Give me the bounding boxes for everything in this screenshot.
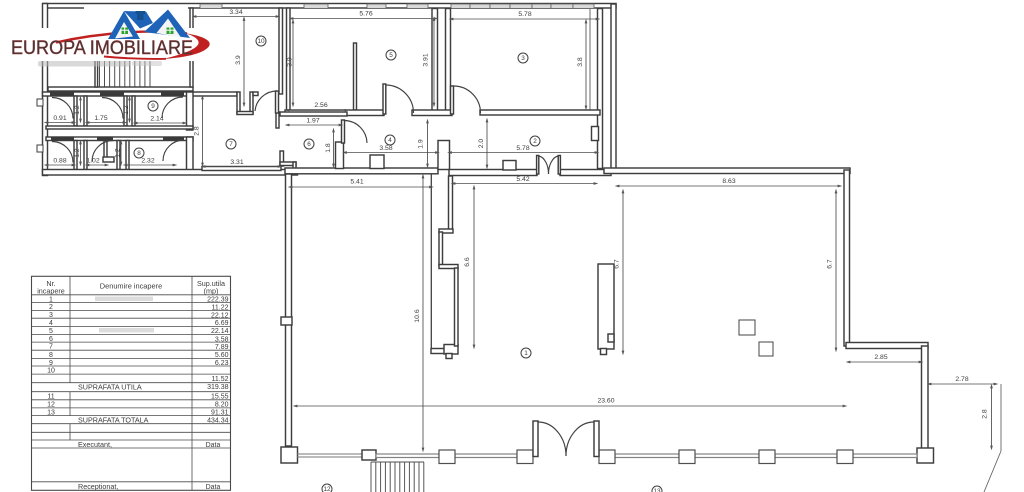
svg-text:13: 13 <box>653 488 661 492</box>
svg-text:3.9: 3.9 <box>287 57 294 67</box>
svg-text:22.12: 22.12 <box>211 312 229 319</box>
svg-text:8.63: 8.63 <box>722 178 735 185</box>
svg-text:11.52: 11.52 <box>212 376 229 383</box>
svg-text:5.60: 5.60 <box>215 352 229 359</box>
svg-text:1.2: 1.2 <box>123 105 130 115</box>
svg-text:1.2: 1.2 <box>74 105 81 115</box>
svg-text:2: 2 <box>49 304 53 311</box>
svg-text:5.42: 5.42 <box>516 176 529 183</box>
svg-text:10: 10 <box>257 38 265 45</box>
svg-text:6: 6 <box>49 336 53 343</box>
svg-text:SUPRAFATA UTILA: SUPRAFATA UTILA <box>78 383 142 392</box>
svg-text:1.2: 1.2 <box>115 148 122 158</box>
svg-text:13: 13 <box>47 410 55 417</box>
svg-text:incapere: incapere <box>37 287 65 296</box>
svg-text:9: 9 <box>151 103 155 110</box>
svg-text:5: 5 <box>389 52 393 59</box>
svg-text:434.34: 434.34 <box>207 417 229 424</box>
svg-text:11: 11 <box>47 393 54 400</box>
svg-text:0.88: 0.88 <box>53 158 66 165</box>
svg-text:8.20: 8.20 <box>215 402 229 409</box>
svg-text:6.69: 6.69 <box>215 320 229 327</box>
svg-text:0.91: 0.91 <box>53 115 66 122</box>
svg-text:5.41: 5.41 <box>350 179 363 186</box>
svg-text:23.60: 23.60 <box>597 398 614 405</box>
svg-text:Executant,: Executant, <box>78 440 112 449</box>
svg-text:2.8: 2.8 <box>194 126 201 136</box>
svg-text:3: 3 <box>49 312 53 319</box>
svg-text:7.89: 7.89 <box>215 344 229 351</box>
svg-text:2.14: 2.14 <box>150 116 163 123</box>
svg-text:Data: Data <box>206 484 221 491</box>
svg-text:222.39: 222.39 <box>207 297 229 304</box>
svg-text:1.75: 1.75 <box>94 115 107 122</box>
svg-text:8: 8 <box>137 150 141 157</box>
svg-text:319.38: 319.38 <box>207 384 229 391</box>
svg-text:1: 1 <box>49 296 53 303</box>
svg-text:5: 5 <box>49 328 53 335</box>
svg-text:2.56: 2.56 <box>314 102 327 109</box>
svg-text:11.22: 11.22 <box>212 304 229 311</box>
svg-text:3.31: 3.31 <box>230 159 243 166</box>
svg-text:2.32: 2.32 <box>141 158 154 165</box>
svg-text:EUROPA IMOBILIARE: EUROPA IMOBILIARE <box>11 38 193 59</box>
svg-text:10.6: 10.6 <box>414 309 421 322</box>
svg-text:6.7: 6.7 <box>827 259 834 269</box>
svg-text:3: 3 <box>521 55 525 62</box>
svg-text:2: 2 <box>533 138 537 145</box>
svg-text:6: 6 <box>307 141 311 148</box>
svg-text:1.8: 1.8 <box>325 143 332 153</box>
svg-text:3.34: 3.34 <box>229 9 242 16</box>
svg-text:8: 8 <box>49 352 53 359</box>
svg-text:Data: Data <box>206 442 221 449</box>
svg-text:6.23: 6.23 <box>215 360 229 367</box>
svg-text:10: 10 <box>47 368 55 375</box>
svg-text:SUPRAFATA TOTALA: SUPRAFATA TOTALA <box>78 416 149 425</box>
svg-text:91.31: 91.31 <box>211 410 229 417</box>
svg-text:1: 1 <box>524 350 528 357</box>
svg-text:2.8: 2.8 <box>982 409 989 419</box>
svg-text:5.78: 5.78 <box>516 145 529 152</box>
svg-text:5.78: 5.78 <box>518 11 531 18</box>
svg-text:4: 4 <box>388 137 392 144</box>
svg-text:1.9: 1.9 <box>418 139 425 149</box>
svg-text:Receptionat,: Receptionat, <box>78 482 118 491</box>
svg-text:(mp): (mp) <box>204 287 219 296</box>
svg-text:Denumire incapere: Denumire incapere <box>100 282 162 291</box>
svg-text:7: 7 <box>49 344 53 351</box>
svg-text:15.55: 15.55 <box>211 394 229 401</box>
svg-text:4: 4 <box>49 320 53 327</box>
svg-text:3.58: 3.58 <box>379 145 392 152</box>
svg-text:1.2: 1.2 <box>74 148 81 158</box>
svg-text:1.02: 1.02 <box>86 158 99 165</box>
svg-text:2.85: 2.85 <box>874 354 887 361</box>
svg-text:3.8: 3.8 <box>577 57 584 67</box>
svg-text:3.58: 3.58 <box>215 336 229 343</box>
svg-text:12: 12 <box>323 486 331 492</box>
svg-text:3.91: 3.91 <box>423 53 430 66</box>
svg-text:6.6: 6.6 <box>464 257 471 267</box>
svg-text:1.97: 1.97 <box>306 118 319 125</box>
svg-text:7: 7 <box>229 141 233 148</box>
svg-text:22.14: 22.14 <box>211 328 229 335</box>
svg-text:3.9: 3.9 <box>235 55 242 65</box>
svg-text:2.0: 2.0 <box>478 139 485 149</box>
svg-text:5.76: 5.76 <box>359 11 372 18</box>
svg-text:6.7: 6.7 <box>614 259 621 269</box>
svg-text:9: 9 <box>49 360 53 367</box>
svg-text:2.78: 2.78 <box>955 376 968 383</box>
svg-text:12: 12 <box>47 401 55 408</box>
